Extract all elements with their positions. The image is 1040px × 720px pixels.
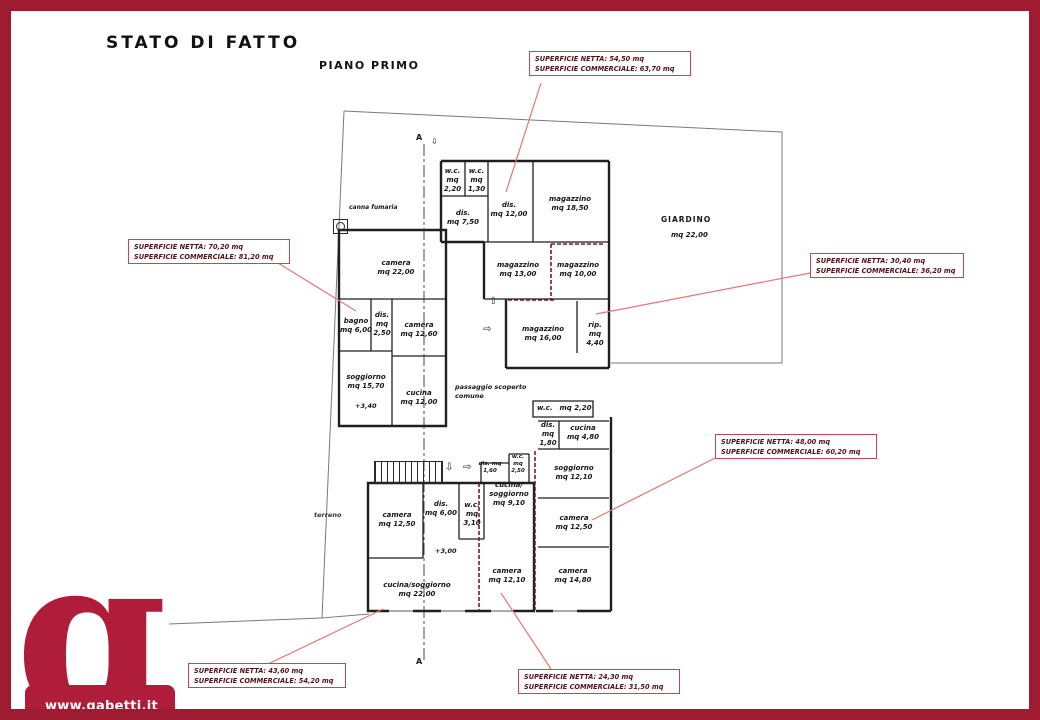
area-annotation-box: SUPERFICIE NETTA: 70,20 mq SUPERFICIE CO… <box>128 239 290 264</box>
room-label-camera: cameramq 12,10 <box>479 567 535 585</box>
area-annotation-box: SUPERFICIE NETTA: 43,60 mq SUPERFICIE CO… <box>188 663 346 688</box>
area-annotation-box: SUPERFICIE NETTA: 24,30 mq SUPERFICIE CO… <box>518 669 680 694</box>
section-marker-a-bottom: A <box>416 657 422 666</box>
staircase <box>374 461 443 483</box>
chimney-symbol <box>333 219 348 234</box>
room-label-dis: dis.mq 7,50 <box>441 209 485 227</box>
room-label-bagno: bagnomq 6,00 <box>339 317 373 335</box>
superficie-commerciale: SUPERFICIE COMMERCIALE: 60,20 mq <box>721 448 871 456</box>
superficie-netta: SUPERFICIE NETTA: 24,30 mq <box>524 673 674 681</box>
area-annotation-box: SUPERFICIE NETTA: 48,00 mq SUPERFICIE CO… <box>715 434 877 459</box>
floor-plan-page: STATO DI FATTO PIANO PRIMO <box>0 0 1040 720</box>
superficie-commerciale: SUPERFICIE COMMERCIALE: 63,70 mq <box>535 65 685 73</box>
gabetti-website: www.gabetti.it <box>45 699 158 714</box>
section-marker-a-top: A <box>416 133 422 142</box>
room-label-dis: dis.mq 6,00 <box>422 500 460 518</box>
room-label-camera: cameramq 14,80 <box>542 567 604 585</box>
level-mark: +3,00 <box>435 547 456 556</box>
room-label-rip: rip.mq4,40 <box>582 321 608 348</box>
room-label-dis: dis.mq1,80 <box>538 421 558 448</box>
superficie-commerciale: SUPERFICIE COMMERCIALE: 54,20 mq <box>194 677 340 685</box>
giardino-area: mq 22,00 <box>671 231 708 240</box>
room-label-camera: cameramq 22,00 <box>356 259 436 277</box>
superficie-netta: SUPERFICIE NETTA: 70,20 mq <box>134 243 284 251</box>
arrow-right-icon: ⇨ <box>483 325 491 335</box>
room-label-cucina-soggiorno: cucina/soggiornomq 9,10 <box>483 481 535 508</box>
level-mark: +3,40 <box>355 402 376 411</box>
room-label-magazzino: magazzinomq 16,00 <box>509 325 577 343</box>
superficie-netta: SUPERFICIE NETTA: 54,50 mq <box>535 55 685 63</box>
room-label-cucina: cucinamq 12,00 <box>395 389 443 407</box>
room-label-wc: w.c.mq2,20 <box>441 167 464 194</box>
room-label-wc: w.c.mq2,50 <box>508 454 528 475</box>
superficie-netta: SUPERFICIE NETTA: 30,40 mq <box>816 257 958 265</box>
arrow-down-icon: ⇩ <box>431 138 438 146</box>
room-label-magazzino: magazzinomq 18,50 <box>535 195 605 213</box>
room-label-wc: w.c.mq1,30 <box>465 167 488 194</box>
room-label-soggiorno: soggiornomq 12,10 <box>544 464 604 482</box>
room-label-dis: dis.mq 12,00 <box>486 201 532 219</box>
room-label-soggiorno: soggiornomq 15,70 <box>340 373 392 391</box>
room-label-camera: cameramq 12,50 <box>370 511 424 529</box>
room-label-wc: w.c.mq 2,20 <box>537 404 593 413</box>
superficie-netta: SUPERFICIE NETTA: 43,60 mq <box>194 667 340 675</box>
canna-fumaria-label: canna fumaria <box>349 204 398 212</box>
superficie-netta: SUPERFICIE NETTA: 48,00 mq <box>721 438 871 446</box>
room-label-wc: w.c.mq3,10 <box>460 501 484 528</box>
superficie-commerciale: SUPERFICIE COMMERCIALE: 36,20 mq <box>816 267 958 275</box>
area-annotation-box: SUPERFICIE NETTA: 54,50 mq SUPERFICIE CO… <box>529 51 691 76</box>
arrow-down-icon: ⇩ <box>445 463 453 473</box>
room-label-cucina: cucinamq 4,80 <box>560 424 606 442</box>
room-label-camera: cameramq 12,60 <box>394 321 444 339</box>
passaggio-label: passaggio scopertocomune <box>455 383 526 401</box>
superficie-commerciale: SUPERFICIE COMMERCIALE: 31,50 mq <box>524 683 674 691</box>
room-label-dis: dis.mq2,50 <box>372 311 392 338</box>
arrow-up-icon: ⇧ <box>489 297 497 307</box>
room-label-camera: cameramq 12,50 <box>544 514 604 532</box>
room-label-cucina-soggiorno: cucina/soggiornomq 22,00 <box>368 581 466 599</box>
area-annotation-box: SUPERFICIE NETTA: 30,40 mq SUPERFICIE CO… <box>810 253 964 278</box>
terreno-label: terreno <box>314 511 341 520</box>
giardino-label: GIARDINO <box>661 215 711 225</box>
room-label-magazzino: magazzinomq 10,00 <box>547 261 609 279</box>
arrow-right-icon: ⇨ <box>463 463 471 473</box>
room-label-magazzino: magazzinomq 13,00 <box>483 261 553 279</box>
superficie-commerciale: SUPERFICIE COMMERCIALE: 81,20 mq <box>134 253 284 261</box>
room-label-dis: dis. mq1,60 <box>475 461 505 475</box>
